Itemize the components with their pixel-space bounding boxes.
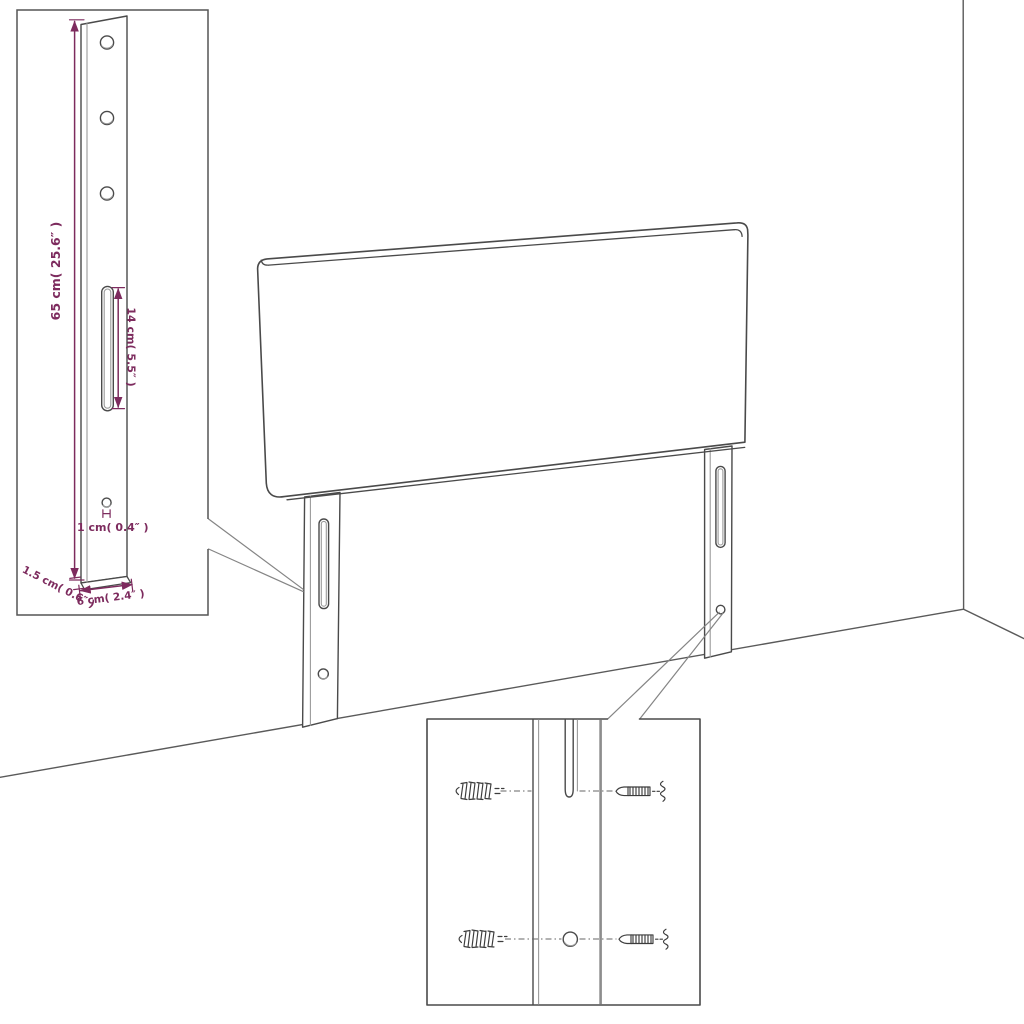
diagram-canvas: 65 cm( 25.6″ ) 14 cm( 5.5″ ) 1 cm( 0.4″ … <box>0 0 1024 1024</box>
left-leg-slot <box>319 519 329 609</box>
headboard-panel <box>258 223 748 500</box>
label-hole-1cm: 1 cm( 0.4″ ) <box>77 521 149 534</box>
right-leg-hole <box>716 605 725 614</box>
product-diagram-svg: 65 cm( 25.6″ ) 14 cm( 5.5″ ) 1 cm( 0.4″ … <box>0 0 1024 1024</box>
label-height-65cm: 65 cm( 25.6″ ) <box>48 222 63 321</box>
floor-line-right <box>964 609 1024 638</box>
right-leg-slot <box>716 466 725 547</box>
label-slot-14cm: 14 cm( 5.5″ ) <box>125 307 138 386</box>
right-leg <box>705 446 732 658</box>
inset-mounting-background <box>427 719 700 1005</box>
left-leg <box>303 493 340 728</box>
callout-lines-left-inset <box>209 519 304 592</box>
inset-leg-slot <box>102 286 114 410</box>
detail-inset-mounting <box>427 719 700 1005</box>
detail-inset-leg: 65 cm( 25.6″ ) 14 cm( 5.5″ ) 1 cm( 0.4″ … <box>17 10 208 615</box>
